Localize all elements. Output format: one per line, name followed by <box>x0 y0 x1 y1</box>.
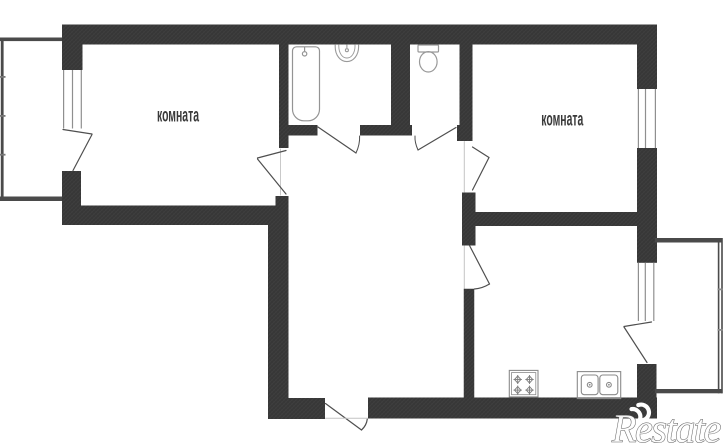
svg-text:комната: комната <box>157 106 199 127</box>
svg-text:Restate: Restate <box>611 406 721 444</box>
svg-text:комната: комната <box>541 110 583 131</box>
